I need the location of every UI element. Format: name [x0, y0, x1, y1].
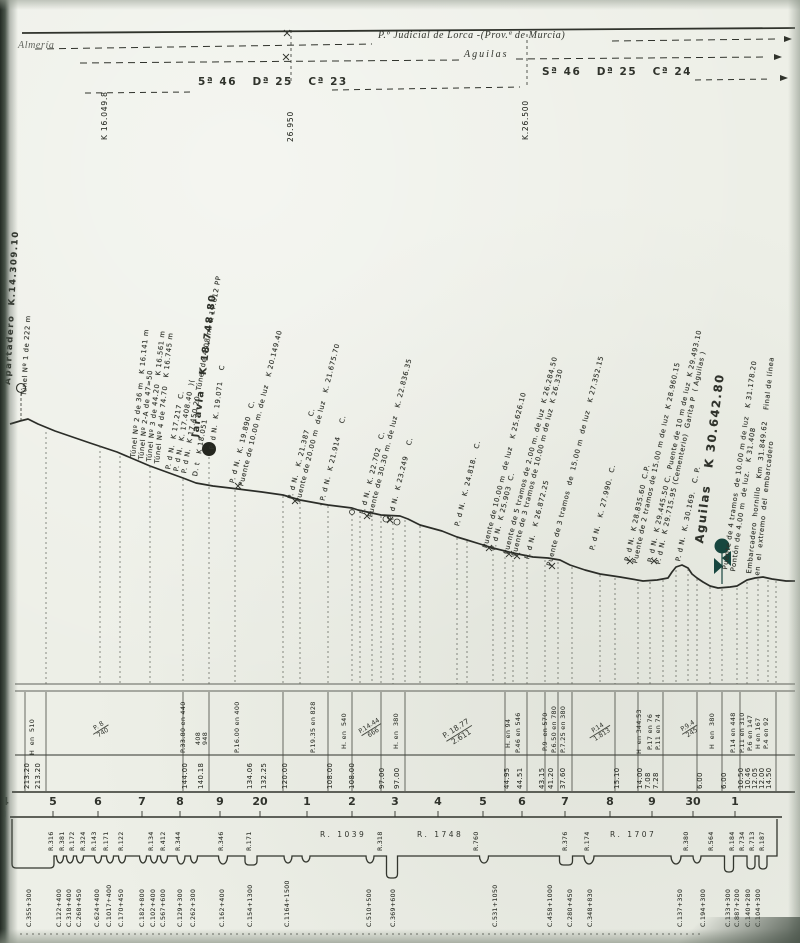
gradient-label: P.19.35 en 828: [310, 701, 317, 753]
km-number: 2: [342, 795, 362, 808]
curve-label: C.122+400: [56, 889, 63, 927]
elevation-value: 15.10: [613, 768, 621, 789]
km-number: 8: [600, 795, 620, 808]
curve-label: C.102+400: [150, 889, 157, 927]
km-number: 3: [385, 795, 405, 808]
radius-label: R.412: [160, 831, 167, 851]
aguilas-line-left: [80, 60, 460, 63]
elevation-value: 44.51: [516, 768, 524, 789]
km-number: 1: [725, 795, 745, 808]
canton-left-label: 5ª 46 Dª 25 Cª 23: [198, 76, 348, 88]
radius-label: R.734: [739, 831, 746, 851]
curve-label: C.182+800: [139, 889, 146, 927]
curve-label: C.280+450: [567, 889, 574, 927]
radius-label: R.344: [175, 831, 182, 851]
aguilas-line-right: [516, 57, 766, 59]
gradient-label: H en 344.53: [636, 709, 643, 754]
gradient-label: H. en 540: [341, 713, 348, 749]
gradient-label: H en 167: [755, 718, 762, 749]
canton-line-right: [695, 79, 772, 80]
km-number: 6: [512, 795, 532, 808]
elevation-value: 7.28: [652, 772, 660, 789]
elevation-value: 44.95: [503, 768, 511, 789]
km-number: 4: [0, 795, 15, 808]
elevation-value: 41.20: [547, 768, 555, 789]
curve-label: C.458+1000: [547, 884, 554, 927]
gradient-label: H. en 94: [505, 719, 512, 748]
curve-label: C.268+450: [76, 889, 83, 927]
radius-label: R.174: [584, 831, 591, 851]
km-number: 7: [132, 795, 152, 808]
km-number: 9: [642, 795, 662, 808]
curve-label: C.262+300: [190, 889, 197, 927]
elevation-value: 108.00: [348, 763, 356, 789]
radius-label: R.346: [218, 831, 225, 851]
radius-label: R.760: [473, 831, 480, 851]
judicial-district-label: P.º Judicial de Lorca -(Prov.ª de Murcia…: [378, 30, 565, 41]
gradient-label: P.16.00 en 400: [234, 701, 241, 753]
arrowhead-icon: [780, 75, 788, 81]
gradient-label: 948: [202, 732, 209, 745]
aguilas-section-label: Aguilas: [464, 49, 509, 60]
curve-label: C.531+1050: [492, 884, 499, 927]
top-km-label: 26.950: [286, 111, 295, 142]
culvert-circle: [394, 519, 400, 525]
radius-label: R.564: [708, 831, 715, 851]
gradient-label: P.33.80 en 440: [180, 701, 187, 753]
curve-label: C.170+450: [118, 889, 125, 927]
elevation-value: 108.00: [326, 763, 334, 789]
gradient-label: P.17 en 76: [647, 714, 654, 750]
gradient-label: P.11 en 74: [655, 714, 662, 750]
elevation-value: 120.00: [281, 763, 289, 789]
radius-label: R.187: [759, 831, 766, 851]
radius-label: R.143: [91, 831, 98, 851]
origin-direction-label: Almería: [18, 40, 54, 51]
radius-label: R.380: [683, 831, 690, 851]
radius-label: R. 1748: [417, 830, 463, 839]
elevation-value: 14.50: [765, 768, 773, 789]
elevation-value: 97.00: [378, 768, 386, 789]
canton-right-label: Sª 46 Dª 25 Cª 24: [542, 66, 692, 78]
curve-label: C.355+300: [26, 889, 33, 927]
elevation-value: 140.18: [197, 763, 205, 789]
arrowhead-icon: [784, 36, 792, 42]
km-number: 6: [88, 795, 108, 808]
curve-label: C.129+300: [177, 889, 184, 927]
km-number: 7: [555, 795, 575, 808]
elevation-value: 213.20: [23, 763, 31, 789]
radius-label: R.134: [148, 831, 155, 851]
elevation-value: 97.00: [393, 768, 401, 789]
gradient-label: P.7.25 en 380: [560, 706, 567, 753]
radius-label: R.381: [59, 831, 66, 851]
elevation-value: 134.06: [246, 763, 254, 789]
gradient-label: P.14 en 448: [730, 712, 737, 753]
elevation-value: 7.08: [644, 772, 652, 789]
km-number: 9: [210, 795, 230, 808]
gradient-label: 408: [195, 732, 202, 745]
elevation-value: 14.00: [636, 768, 644, 789]
radius-label: R.318: [377, 831, 384, 851]
gradient-label: H en 510: [29, 719, 36, 755]
curve-label: C.154+1300: [247, 884, 254, 927]
km-number: 30: [683, 795, 703, 808]
district-line-left: [35, 44, 372, 49]
gradient-label: P.9 en 570: [542, 712, 549, 751]
elevation-value: 6.00: [696, 772, 704, 789]
curve-label: C.567+600: [160, 889, 167, 927]
plan-alignment-band: [12, 819, 777, 878]
arrowhead-icon: [774, 54, 782, 60]
curve-label: C.510+500: [366, 889, 373, 927]
curve-label: C.104+300: [755, 889, 762, 927]
district-line-right: [612, 39, 776, 41]
radius-label: R. 1707: [610, 830, 656, 839]
gradient-label: P.6.50 en 780: [551, 706, 558, 753]
radius-label: R. 1039: [320, 830, 366, 839]
elevation-value: 132.25: [260, 763, 268, 789]
curve-label: C.1017+400: [106, 884, 113, 927]
radius-label: R.171: [246, 831, 253, 851]
radius-label: R.316: [48, 831, 55, 851]
km-number: 4: [428, 795, 448, 808]
radius-label: R.171: [103, 831, 110, 851]
top-km-label: K 16.049.8: [100, 91, 109, 140]
curve-label: C.1164+1500: [284, 880, 291, 927]
km-number: 5: [43, 795, 63, 808]
curve-label: C.140+280: [745, 889, 752, 927]
gradient-label: H. en 380: [393, 713, 400, 749]
gradient-label: P.4 en 92: [763, 717, 770, 749]
elevation-value: 6.00: [720, 772, 728, 789]
curve-label: C.348+830: [587, 889, 594, 927]
curve-label: C.137+350: [677, 889, 684, 927]
elevation-value: 144.00: [181, 763, 189, 789]
bridge-x-mark: [283, 54, 289, 60]
km-number: 5: [473, 795, 493, 808]
radius-label: R.172: [69, 831, 76, 851]
radius-label: R.713: [749, 831, 756, 851]
top-km-label: K.26.500: [521, 100, 530, 140]
curve-label: C.162+400: [219, 889, 226, 927]
km-number: 20: [250, 795, 270, 808]
curve-label: C.369+600: [390, 889, 397, 927]
radius-label: R.324: [80, 831, 87, 851]
curve-label: C.887+200: [734, 889, 741, 927]
elevation-value: 43.15: [538, 768, 546, 789]
km-number: 1: [297, 795, 317, 808]
gradient-label: H en 380: [709, 713, 716, 749]
gradient-label: P.46 en 546: [515, 712, 522, 753]
radius-label: R.184: [729, 831, 736, 851]
gradient-label: P.11 en 310: [739, 712, 746, 753]
gradient-label: P.6 en 147: [747, 715, 754, 751]
curve-label: C.624+400: [94, 889, 101, 927]
scanned-profile-page: Almería P.º Judicial de Lorca -(Prov.ª d…: [0, 0, 800, 943]
elevation-value: 37.60: [559, 768, 567, 789]
curve-label: C.318+400: [66, 889, 73, 927]
curve-label: C.133+300: [725, 889, 732, 927]
canton-line-mid: [332, 87, 520, 90]
radius-label: R.376: [562, 831, 569, 851]
radius-label: R.122: [118, 831, 125, 851]
km-number: 8: [170, 795, 190, 808]
curve-label: C.194+300: [700, 889, 707, 927]
elevation-value: 213.20: [34, 763, 42, 789]
